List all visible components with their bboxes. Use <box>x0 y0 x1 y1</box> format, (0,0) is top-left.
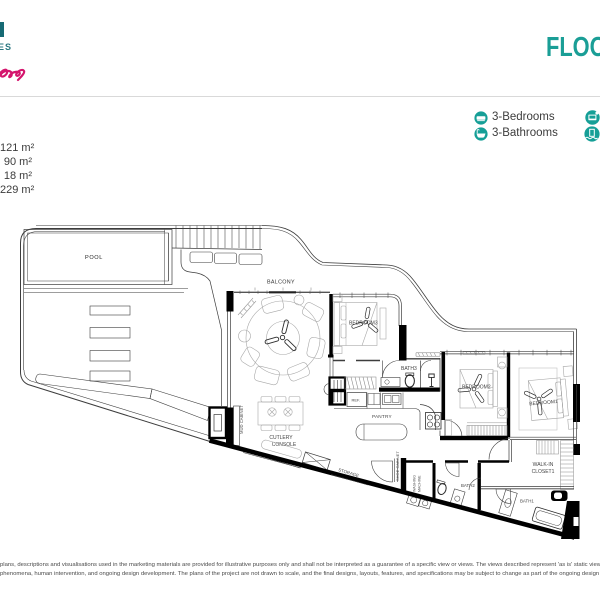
svg-text:MUD CABINET: MUD CABINET <box>239 405 244 434</box>
svg-text:REF.: REF. <box>352 398 361 403</box>
svg-text:WASHING: WASHING <box>413 475 417 492</box>
svg-text:POOL: POOL <box>85 255 103 261</box>
svg-text:BATH1: BATH1 <box>520 499 534 504</box>
svg-text:CUTLERY: CUTLERY <box>269 435 293 441</box>
svg-text:BATH3: BATH3 <box>401 366 417 372</box>
svg-text:PANTRY: PANTRY <box>372 414 392 419</box>
svg-text:BEDROOM2: BEDROOM2 <box>462 385 491 391</box>
svg-text:BEDROOM1: BEDROOM1 <box>529 399 558 407</box>
svg-text:MACHINE: MACHINE <box>418 475 422 492</box>
svg-text:CLOSET1: CLOSET1 <box>532 469 555 475</box>
svg-text:BALCONY: BALCONY <box>267 280 295 286</box>
svg-text:BATH2: BATH2 <box>461 483 475 488</box>
svg-text:WALK-IN: WALK-IN <box>533 462 554 468</box>
